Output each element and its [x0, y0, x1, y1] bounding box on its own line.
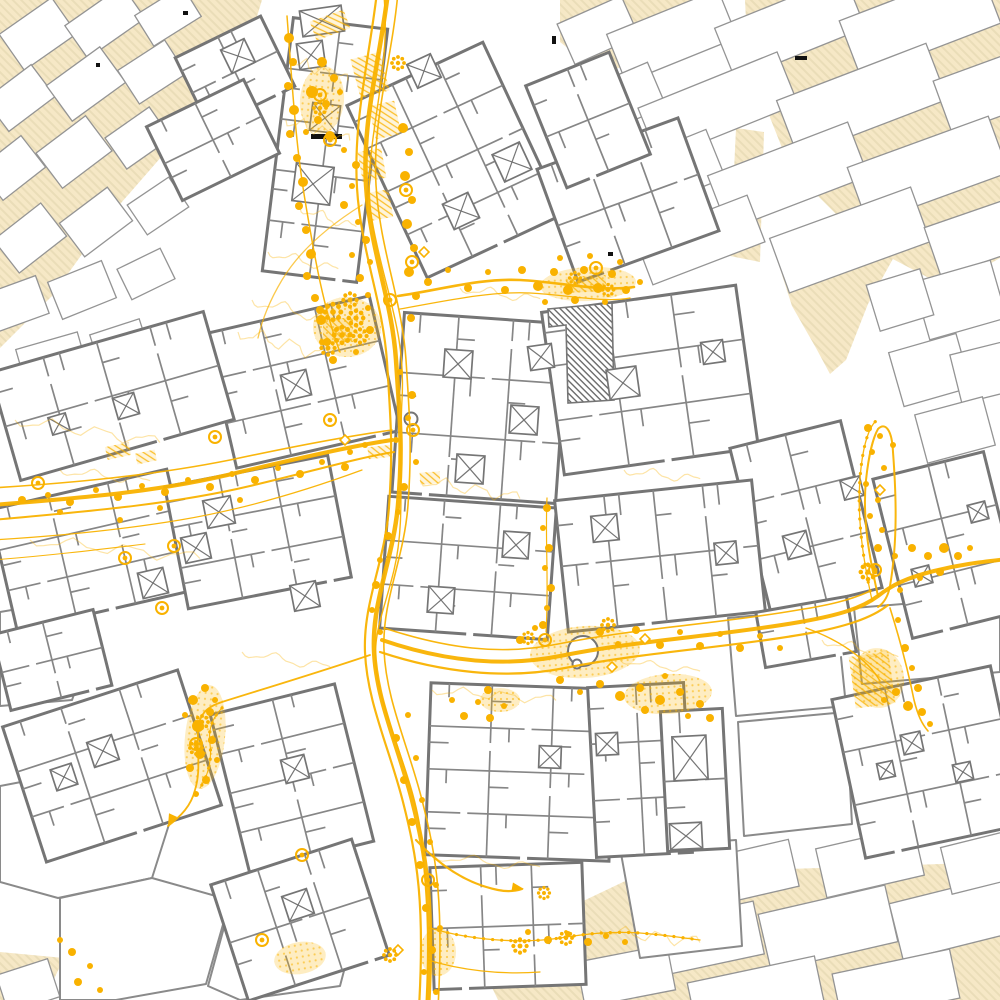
urban-plan-map	[0, 0, 1000, 1000]
rosette-marker	[568, 271, 582, 285]
rosette-marker	[332, 325, 353, 346]
courtyard-x	[292, 163, 334, 205]
courtyard-x	[509, 405, 539, 435]
rosette-marker	[859, 563, 878, 582]
courtyard-x	[669, 822, 702, 850]
rosette-marker	[351, 327, 368, 344]
rosette-marker	[188, 740, 204, 756]
courtyard-x	[967, 501, 989, 523]
courtyard-x	[782, 530, 811, 559]
rosette-marker	[347, 309, 366, 328]
courtyard-x	[606, 366, 640, 400]
courtyard-x	[455, 454, 485, 484]
courtyard-x	[112, 392, 139, 419]
rosette-marker	[390, 55, 406, 71]
rosette-marker	[312, 100, 328, 116]
courtyard-x	[280, 754, 309, 783]
courtyard-x	[527, 343, 554, 370]
courtyard-x	[181, 533, 212, 564]
courtyard-x	[595, 732, 618, 755]
rosette-marker	[341, 291, 358, 308]
courtyard-x	[877, 761, 896, 780]
rosette-marker	[601, 283, 615, 297]
building-block	[425, 683, 615, 861]
courtyard-x	[443, 349, 473, 379]
rosette-marker	[323, 302, 344, 323]
courtyard-x	[952, 761, 973, 782]
courtyard-x	[672, 735, 708, 781]
rosette-marker	[319, 339, 336, 356]
rosette-marker	[558, 930, 574, 946]
courtyard-x	[280, 369, 311, 400]
rosette-marker	[382, 947, 398, 963]
courtyard-x	[427, 586, 455, 614]
rosette-marker	[537, 886, 551, 900]
courtyard-x	[137, 567, 168, 598]
courtyard-x	[714, 541, 738, 565]
courtyard-x	[539, 746, 562, 769]
building-block	[430, 862, 586, 989]
courtyard-x	[290, 581, 320, 611]
courtyard-x	[900, 731, 924, 755]
courtyard-x	[502, 531, 530, 559]
rosette-marker	[194, 714, 210, 730]
rosette-marker	[521, 631, 535, 645]
courtyard-x	[701, 340, 726, 365]
map-canvas	[0, 0, 1000, 1000]
rosette-marker	[511, 937, 528, 954]
courtyard-x	[591, 514, 620, 543]
rosette-marker	[600, 617, 616, 633]
